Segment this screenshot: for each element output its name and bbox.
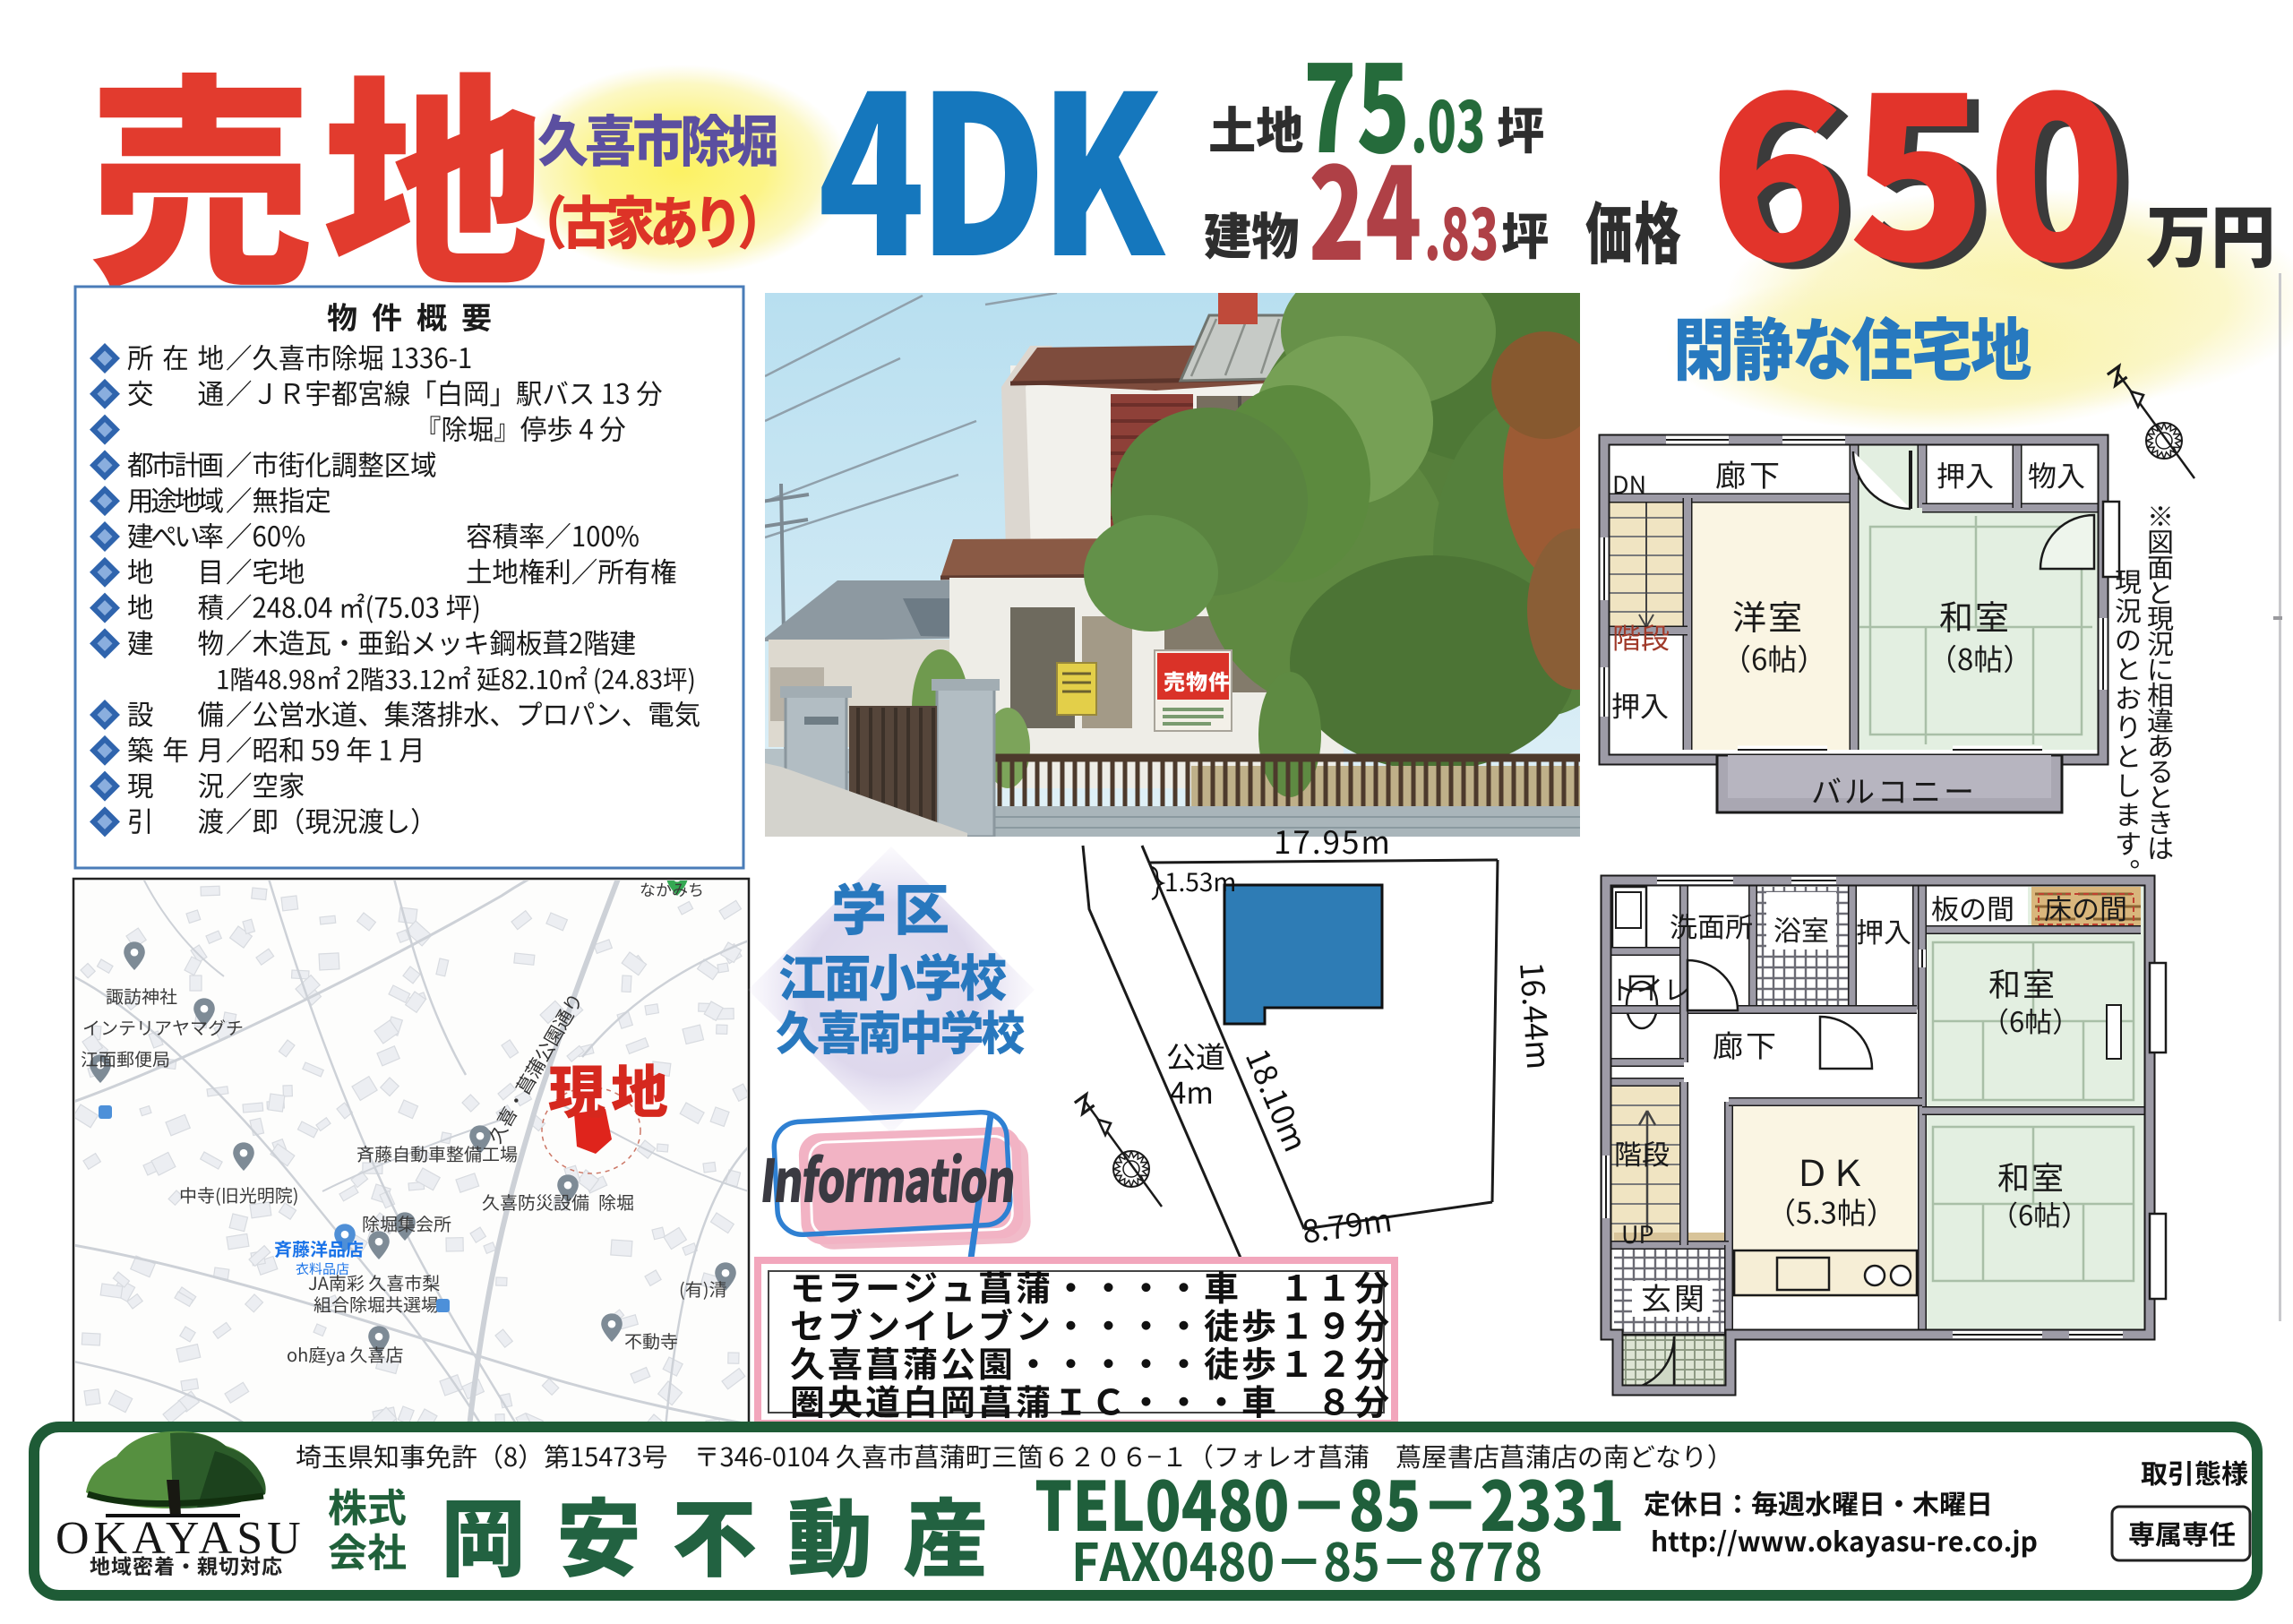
svg-text:OKAYASU: OKAYASU — [56, 1513, 305, 1564]
